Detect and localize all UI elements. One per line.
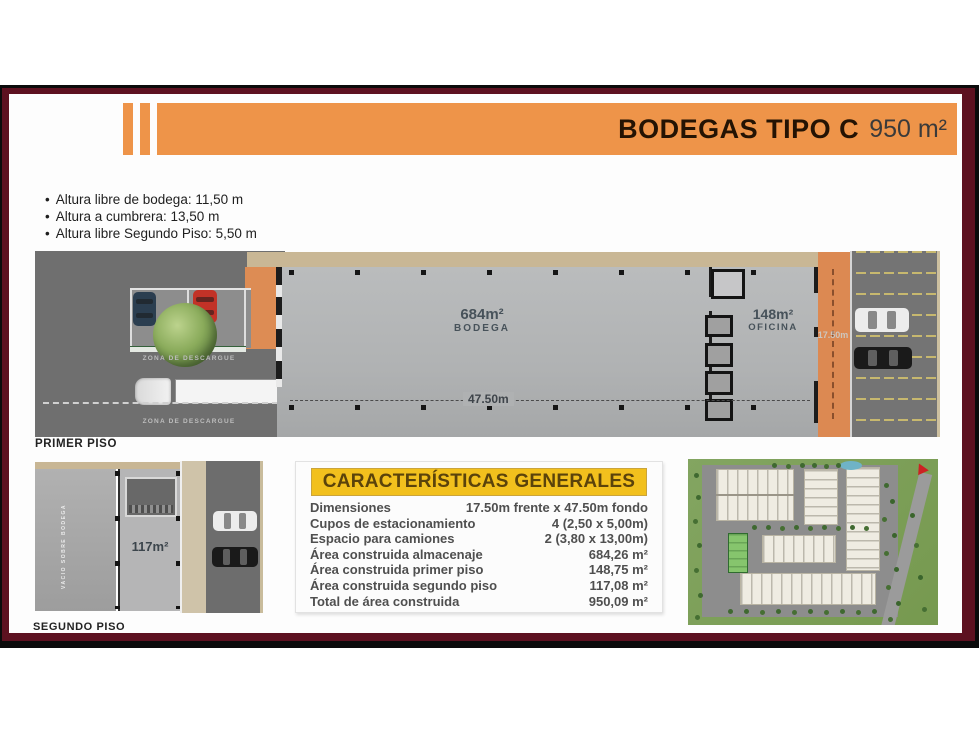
restroom (705, 371, 733, 395)
warehouse-block (740, 573, 876, 605)
dock-wall-segment (276, 297, 282, 315)
block-aisle (716, 494, 794, 496)
second-floor-label: SEGUNDO PISO (33, 621, 125, 633)
warehouse-block (846, 467, 880, 571)
street-curb (260, 461, 263, 613)
first-floor-plan: ZONA DE DESCARGUE ZONA DE DESCARGUE 684m… (35, 251, 940, 437)
void-note: VACIO SOBRE BODEGA (61, 489, 67, 589)
second-floor-plan: VACIO SOBRE BODEGA 117m² (33, 461, 263, 617)
dock-wall-segment (276, 267, 282, 285)
header-accent-bar-1 (123, 103, 133, 155)
table-title: CARACTERÍSTICAS GENERALES (311, 468, 647, 496)
unloading-zone-label-bottom: ZONA DE DESCARGUE (123, 418, 255, 425)
table-body: Dimensiones17.50m frente x 47.50m fondo … (310, 500, 648, 609)
tree-row-bottom (728, 609, 733, 614)
tree-row-top (800, 463, 805, 468)
facade-strip (180, 461, 206, 613)
column-line (115, 471, 120, 609)
spec-item: •Altura libre Segundo Piso: 5,50 m (45, 225, 257, 242)
front-orange-strip (818, 252, 850, 437)
depth-dimension-text: 47.50m (463, 392, 514, 406)
depth-dimension-line (290, 400, 810, 401)
restroom (705, 343, 733, 367)
spec-item: •Altura a cumbrera: 13,50 m (45, 208, 257, 225)
restroom (705, 399, 733, 421)
second-floor-area: 117m² (121, 539, 179, 554)
table-row: Área construida almacenaje684,26 m² (310, 547, 648, 563)
road-dashed-line (43, 402, 278, 404)
general-characteristics-table: CARACTERÍSTICAS GENERALES Dimensiones17.… (295, 461, 663, 613)
truck-cab (135, 378, 171, 405)
blue-car (133, 292, 156, 326)
truck-trailer (175, 379, 278, 404)
header-bar: BODEGAS TIPO C 950 m² (157, 103, 957, 155)
white-car (213, 511, 257, 531)
top-wall (35, 462, 180, 469)
black-car (212, 547, 258, 567)
pond (840, 461, 862, 470)
table-row: Cupos de estacionamiento4 (2,50 x 5,00m) (310, 516, 648, 532)
warehouse-block (804, 469, 838, 525)
table-row: Total de área construida950,09 m² (310, 594, 648, 610)
black-car (854, 347, 912, 369)
warehouse-block (762, 535, 836, 563)
tree-cluster-right (884, 483, 889, 488)
page-title-area: 950 m² (869, 115, 947, 144)
spec-item: •Altura libre de bodega: 11,50 m (45, 191, 257, 208)
unloading-zone-label-top: ZONA DE DESCARGUE (123, 355, 255, 362)
street-parking (206, 461, 260, 613)
header-accent-bar-2 (140, 103, 150, 155)
slide-canvas: BODEGAS TIPO C 950 m² •Altura libre de b… (0, 0, 979, 734)
street-parking (850, 251, 940, 437)
first-floor-label: PRIMER PISO (35, 438, 117, 450)
table-row: Dimensiones17.50m frente x 47.50m fondo (310, 500, 648, 516)
office-entry-room (711, 269, 745, 299)
bodega-area-label: 684m² BODEGA (432, 306, 532, 334)
tree-row-mid (752, 525, 757, 530)
void-over-warehouse (35, 469, 116, 611)
table-row: Área construida segundo piso117,08 m² (310, 578, 648, 594)
site-plan-map (688, 459, 938, 625)
street-curb (937, 251, 940, 437)
page-title: BODEGAS TIPO C (618, 114, 859, 145)
table-row: Espacio para camiones2 (3,80 x 13,00m) (310, 531, 648, 547)
white-car (855, 308, 909, 332)
highlighted-type-c-unit (728, 533, 748, 573)
front-dimension-line (832, 269, 834, 419)
restroom (705, 315, 733, 337)
oficina-area-label: 148m² OFICINA (733, 306, 813, 333)
dock-wall-segment (276, 361, 282, 379)
illegible-room-label (129, 505, 173, 513)
spec-list: •Altura libre de bodega: 11,50 m •Altura… (45, 191, 257, 242)
table-row: Área construida primer piso148,75 m² (310, 562, 648, 578)
tree-row-left (694, 473, 699, 478)
dock-wall-segment (276, 329, 282, 347)
